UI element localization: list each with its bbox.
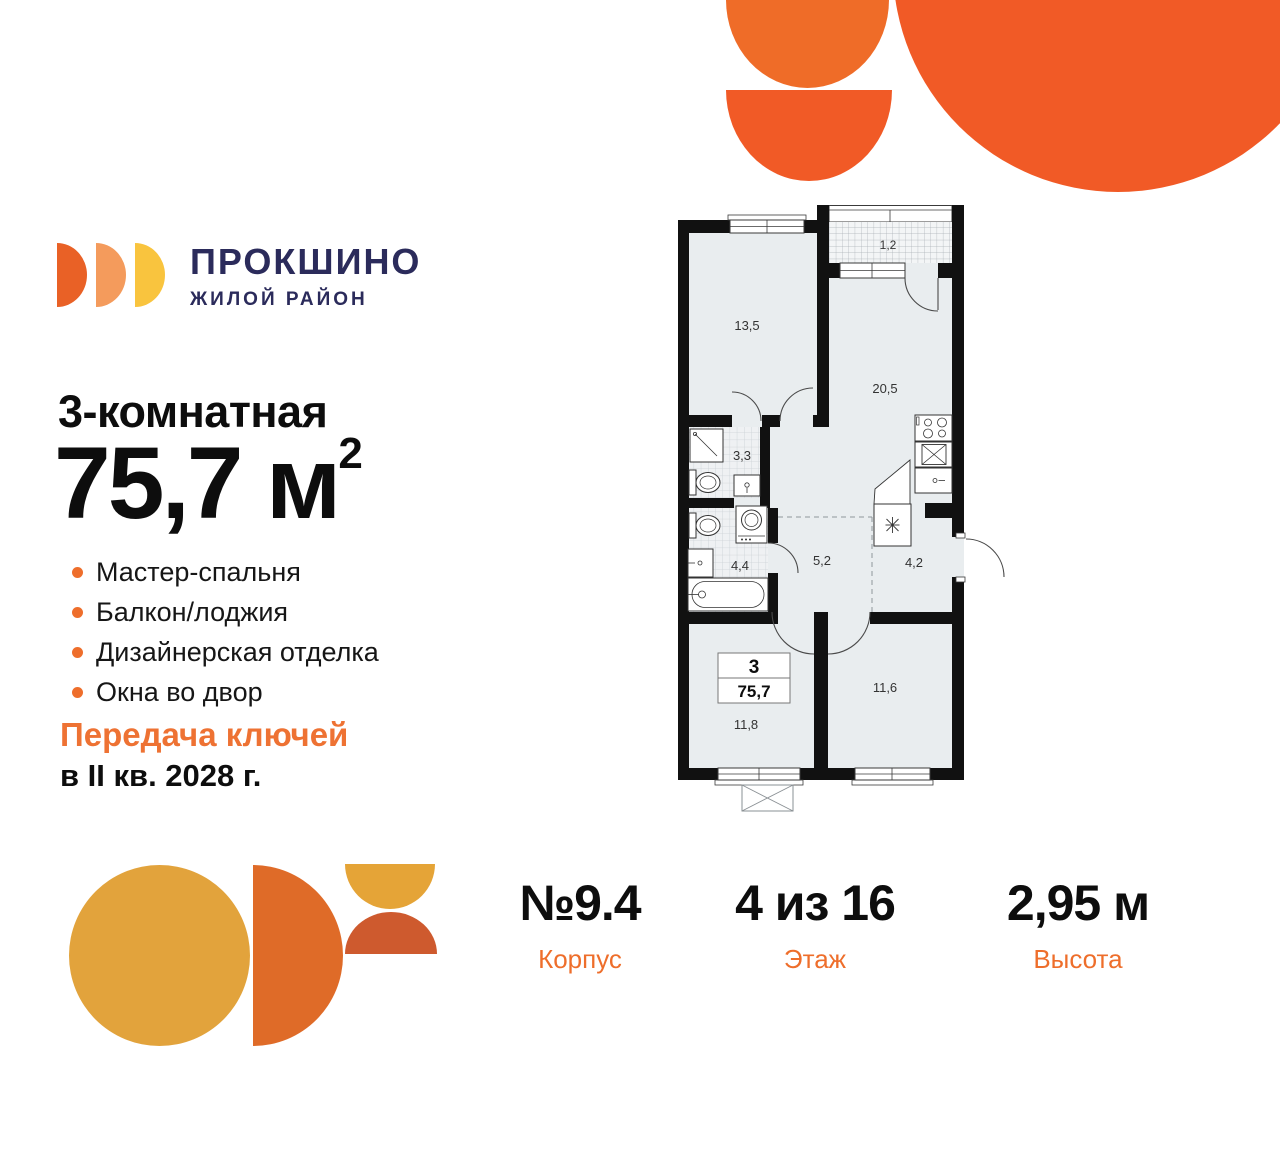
window-bottom-left: [715, 768, 803, 785]
room-label-bedroom-left: 11,8: [734, 717, 758, 732]
plan-info-box: 3 75,7: [718, 653, 790, 703]
kitchen-counter-icon: [915, 468, 952, 493]
decor-a101-halfcircle-icon: [253, 865, 343, 1046]
bathtub-icon: [688, 578, 768, 611]
decor-a101-yellow-icon: [345, 864, 435, 909]
bullet-icon: [72, 567, 83, 578]
feature-item: Окна во двор: [72, 672, 379, 712]
room-label-hallway: 5,2: [813, 553, 831, 568]
brand-tagline: ЖИЛОЙ РАЙОН: [190, 289, 421, 311]
area-superscript: 2: [338, 429, 362, 478]
brand-text: ПРОКШИНО ЖИЛОЙ РАЙОН: [190, 241, 421, 311]
brand-logo-icon: [57, 243, 187, 307]
washing-machine-icon: [736, 506, 767, 543]
shower-icon: [690, 429, 723, 462]
room-label-balcony: 1,2: [880, 238, 897, 252]
window-top: [728, 215, 806, 233]
feature-label: Мастер-спальня: [96, 557, 301, 588]
listing-card: ПРОКШИНО ЖИЛОЙ РАЙОН 3-комнатная 75,7 м2…: [0, 0, 1280, 1160]
developer-logo: A101: [69, 865, 250, 1046]
sink-icon: [688, 549, 713, 577]
room-label-bedroom-master: 13,5: [734, 318, 759, 333]
stat-building-value: №9.4: [450, 874, 710, 932]
room-label-kitchen-living: 20,5: [872, 381, 897, 396]
room-label-bathroom-large: 4,4: [731, 558, 749, 573]
feature-label: Балкон/лоджия: [96, 597, 288, 628]
plan-rooms-count: 3: [749, 657, 760, 678]
decor-semicircle-top-icon: [726, 0, 889, 88]
brand-name: ПРОКШИНО: [190, 241, 421, 283]
room-label-entrance-hall: 4,2: [905, 555, 923, 570]
logo-halfcircle-orange-icon: [57, 243, 87, 307]
window-bottom-right: [852, 768, 933, 785]
logo-halfcircle-salmon-icon: [96, 243, 126, 307]
handover-date: в II кв. 2028 г.: [60, 758, 261, 794]
bullet-icon: [72, 647, 83, 658]
stove-icon: [915, 415, 952, 441]
floor-plan: 3 75,7 13,5 1,2 20,5 3,3 4,4 5,2 4,2 11,…: [672, 202, 1012, 828]
sink-icon: [734, 475, 760, 496]
area-value: 75,7: [54, 426, 241, 540]
feature-label: Окна во двор: [96, 677, 263, 708]
decor-semicircle-bottom-icon: [726, 90, 892, 181]
plan-total-area: 75,7: [737, 682, 770, 701]
logo-halfcircle-yellow-icon: [135, 243, 165, 307]
feature-item: Балкон/лоджия: [72, 592, 379, 632]
stat-floor: 4 из 16 Этаж: [685, 874, 945, 975]
decor-big-circle-icon: [893, 0, 1280, 192]
kitchen-sink-icon: [915, 442, 952, 467]
handover-label: Передача ключей: [60, 716, 348, 754]
room-label-bathroom: 3,3: [733, 448, 751, 463]
bullet-icon: [72, 607, 83, 618]
room-label-bedroom-right: 11,6: [873, 680, 897, 695]
area-unit: м: [266, 426, 338, 540]
feature-item: Дизайнерская отделка: [72, 632, 379, 672]
ac-unit-icon: [742, 785, 793, 811]
stat-ceiling-height-label: Высота: [948, 944, 1208, 975]
feature-item: Мастер-спальня: [72, 552, 379, 592]
feature-label: Дизайнерская отделка: [96, 637, 379, 668]
stat-building: №9.4 Корпус: [450, 874, 710, 975]
total-area: 75,7 м2: [54, 430, 363, 536]
stat-ceiling-height-value: 2,95 м: [948, 874, 1208, 932]
window-balcony: [840, 263, 905, 278]
feature-list: Мастер-спальня Балкон/лоджия Дизайнерска…: [72, 552, 379, 712]
stat-floor-label: Этаж: [685, 944, 945, 975]
bullet-icon: [72, 687, 83, 698]
decor-a101-red-icon: [345, 912, 437, 954]
stat-building-label: Корпус: [450, 944, 710, 975]
stat-ceiling-height: 2,95 м Высота: [948, 874, 1208, 975]
stat-floor-value: 4 из 16: [685, 874, 945, 932]
balcony-glazing: [829, 206, 952, 223]
